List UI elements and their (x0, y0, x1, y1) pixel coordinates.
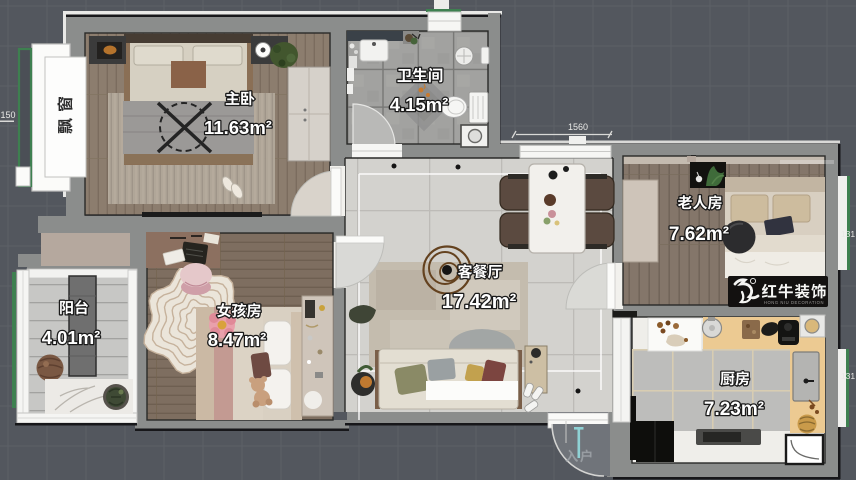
svg-text:4.01m²: 4.01m² (42, 327, 101, 348)
svg-text:HONG NIU DECORATION: HONG NIU DECORATION (764, 300, 824, 305)
svg-text:7.23m²: 7.23m² (704, 399, 764, 420)
svg-text:11.63m²: 11.63m² (204, 117, 272, 138)
svg-text:131: 131 (841, 229, 855, 239)
svg-text:1560: 1560 (568, 122, 588, 132)
svg-text:7.62m²: 7.62m² (669, 224, 729, 245)
svg-text:150: 150 (0, 110, 15, 120)
svg-text:8.47m²: 8.47m² (208, 329, 267, 350)
svg-text:131: 131 (841, 371, 855, 381)
svg-text:4.15m²: 4.15m² (390, 94, 449, 115)
svg-text:17.42m²: 17.42m² (442, 291, 517, 313)
